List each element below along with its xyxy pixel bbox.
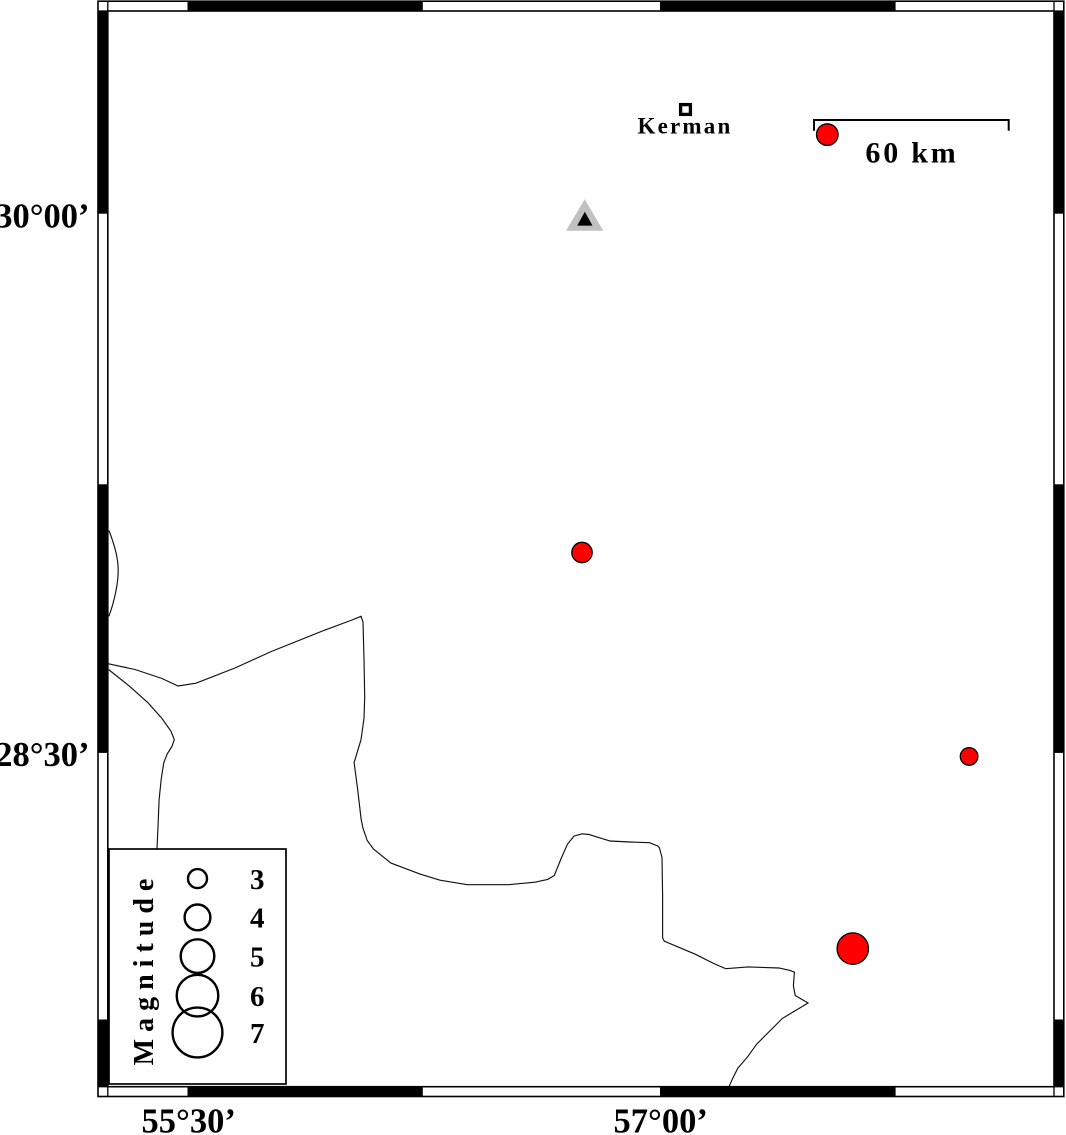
svg-text:30°00’: 30°00’ [0,198,90,236]
svg-text:7: 7 [250,1018,265,1050]
svg-text:57°00’: 57°00’ [614,1103,708,1135]
svg-text:4: 4 [250,903,265,935]
svg-text:60 km: 60 km [865,136,958,169]
svg-text:55°30’: 55°30’ [142,1103,236,1135]
svg-text:3: 3 [250,864,265,896]
svg-text:Magnitude: Magnitude [129,872,160,1066]
svg-text:Kerman: Kerman [638,114,733,139]
svg-text:6: 6 [250,981,265,1013]
svg-text:5: 5 [250,941,265,973]
svg-text:28°30’: 28°30’ [0,736,90,774]
